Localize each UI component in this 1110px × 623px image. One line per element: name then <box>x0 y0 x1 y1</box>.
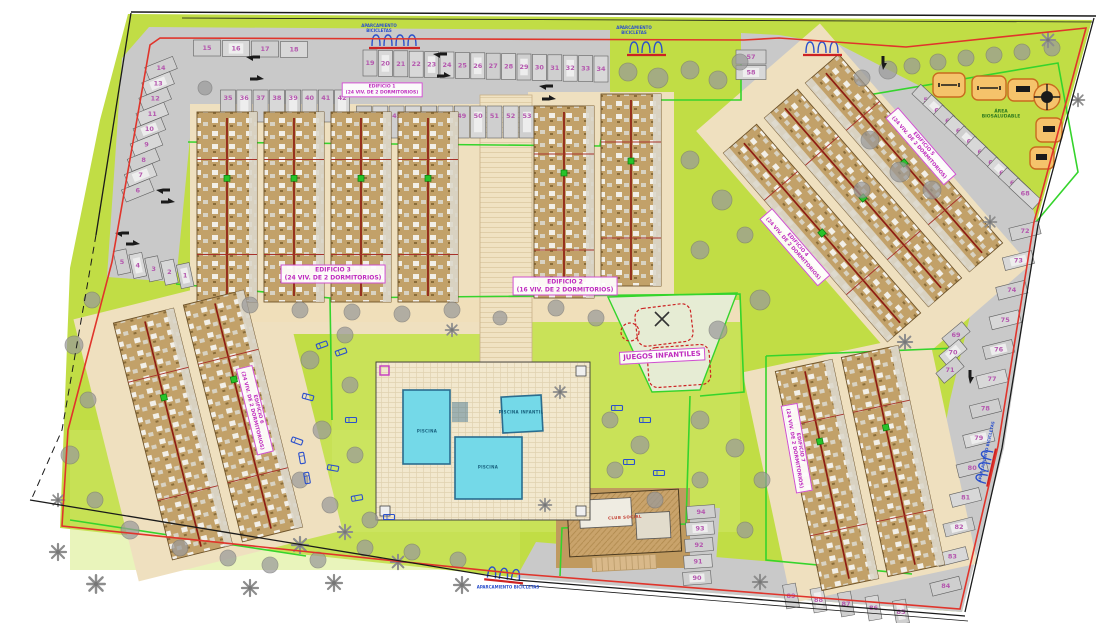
tree-icon <box>712 190 732 210</box>
palm-tree-icon <box>898 335 912 349</box>
parking-space-number: 90 <box>692 574 702 582</box>
parking-space-number: 7 <box>138 171 143 179</box>
tree-icon <box>890 162 910 182</box>
bike-parking-label: APARCAMIENTO BICICLETAS <box>361 24 397 34</box>
parking-space-number: 77 <box>987 375 996 383</box>
site-plan-drawing: 5432114131211109876151617181920212223242… <box>0 0 1110 623</box>
tree-icon <box>450 552 466 568</box>
tree-icon <box>681 151 699 169</box>
parking-space-number: 41 <box>321 94 331 102</box>
parking-space-number: 39 <box>289 94 299 102</box>
parking-space: 91 <box>684 554 713 569</box>
parking-space-number: 6 <box>136 186 141 194</box>
tree-icon <box>602 412 618 428</box>
parking-space-number: 22 <box>412 60 421 68</box>
parking-space-number: 2 <box>167 268 172 276</box>
parking-space-number: 52 <box>506 112 515 120</box>
tree-icon <box>87 492 103 508</box>
fitness-area-label: ÁREA BIOSALUDABLE <box>982 110 1021 121</box>
parking-space-number: 26 <box>473 62 483 70</box>
parking-space: 16 <box>223 41 250 57</box>
parking-space: 33 <box>579 56 593 82</box>
tree-icon <box>262 557 278 573</box>
tree-icon <box>310 552 326 568</box>
parking-space-number: 76 <box>994 345 1004 353</box>
parking-space-number: 38 <box>272 94 282 102</box>
tree-icon <box>301 351 319 369</box>
parking-space-number: 58 <box>746 69 756 77</box>
tree-icon <box>854 182 870 198</box>
elevator-core-icon <box>291 175 297 181</box>
parking-space: 17 <box>252 41 279 57</box>
parking-space-number: 12 <box>151 95 160 103</box>
tree-icon <box>607 462 623 478</box>
parking-space-number: 1 <box>183 272 188 280</box>
elevator-core-icon <box>160 394 167 401</box>
tree-icon <box>198 81 212 95</box>
apartment-building <box>534 106 594 298</box>
parking-space-number: 20 <box>381 59 391 67</box>
parking-space-number: 91 <box>693 558 703 566</box>
palm-tree-icon <box>242 580 258 596</box>
tree-icon <box>737 227 753 243</box>
parking-space-number: 11 <box>148 110 158 118</box>
parking-space: 30 <box>532 54 546 80</box>
parking-space-number: 27 <box>489 62 498 70</box>
building-name: EDIFICIO 1 <box>369 84 396 89</box>
parking-space-number: 29 <box>519 63 529 71</box>
parking-space: 32 <box>563 55 577 81</box>
parking-space: 20 <box>378 50 392 76</box>
fitness-label-line2: BIOSALUDABLE <box>982 115 1021 120</box>
building-label-edificio-1: EDIFICIO 1 (24 VIV. DE 2 DORMITORIOS) <box>342 82 423 97</box>
tree-icon <box>588 310 604 326</box>
parking-space: 28 <box>502 54 516 80</box>
parking-space-number: 93 <box>695 525 704 533</box>
parking-space-number: 32 <box>566 64 575 72</box>
tree-icon <box>548 300 564 316</box>
tree-icon <box>709 321 727 339</box>
parking-space-number: 82 <box>954 523 963 531</box>
pool-stairs <box>452 402 468 422</box>
tree-icon <box>754 472 770 488</box>
tree-icon <box>394 306 410 322</box>
building-label-edificio-3: EDIFICIO 3 (24 VIV. DE 2 DORMITORIOS) <box>281 265 386 284</box>
tree-icon <box>958 50 974 66</box>
parking-space-number: 13 <box>154 79 163 87</box>
tree-icon <box>854 70 870 86</box>
tree-icon <box>493 311 507 325</box>
parking-space-number: 37 <box>256 94 265 102</box>
parking-space-number: 80 <box>968 464 978 472</box>
apartment-building <box>398 112 458 302</box>
tree-icon <box>322 497 338 513</box>
palm-tree-icon <box>554 386 567 399</box>
tree-icon <box>61 446 79 464</box>
parking-space-number: 84 <box>941 582 951 590</box>
parking-space-number: 30 <box>535 63 545 71</box>
site-plan-canvas: 5432114131211109876151617181920212223242… <box>0 0 1110 623</box>
parking-space-number: 25 <box>458 61 468 69</box>
tree-icon <box>648 68 668 88</box>
parking-space-number: 69 <box>951 331 961 339</box>
parking-space-number: 16 <box>231 45 241 53</box>
club-pergola <box>592 554 657 571</box>
palm-tree-icon <box>753 575 767 589</box>
elevator-core-icon <box>561 170 567 176</box>
parking-space: 53 <box>520 106 535 138</box>
building-label-edificio-2: EDIFICIO 2 (16 VIV. DE 2 DORMITORIOS) <box>513 277 618 296</box>
tree-icon <box>65 336 83 354</box>
palm-tree-icon <box>539 499 552 512</box>
parking-space-number: 24 <box>442 61 452 69</box>
parking-space-number: 40 <box>305 94 315 102</box>
elevator-core-icon <box>224 175 230 181</box>
parking-space: 31 <box>548 55 562 81</box>
parking-space-number: 53 <box>522 112 531 120</box>
palm-tree-icon <box>454 577 470 593</box>
bike-parking-label: APARCAMIENTO BICICLETAS <box>616 26 652 36</box>
parking-space: 18 <box>281 42 308 58</box>
parking-space-number: 31 <box>550 64 560 72</box>
tree-icon <box>344 304 360 320</box>
bike-label-line2: BICICLETAS <box>616 31 652 36</box>
parking-space-number: 78 <box>981 405 991 413</box>
tree-icon <box>930 54 946 70</box>
tree-icon <box>619 63 637 81</box>
tree-icon <box>313 421 331 439</box>
parking-space-number: 36 <box>240 94 250 102</box>
building-name: EDIFICIO 3 <box>315 267 351 274</box>
tree-icon <box>709 71 727 89</box>
elevator-core-icon <box>425 175 431 181</box>
parking-space-number: 8 <box>141 156 146 164</box>
pool-main <box>403 390 450 464</box>
parking-space-number: 19 <box>365 59 375 67</box>
parking-space: 52 <box>503 106 518 138</box>
tree-icon <box>750 290 770 310</box>
parking-space-number: 74 <box>1007 286 1017 294</box>
parking-space-number: 10 <box>145 125 155 133</box>
tree-icon <box>342 377 358 393</box>
parking-space: 26 <box>471 53 485 79</box>
parking-space-number: 23 <box>427 61 436 69</box>
tree-icon <box>726 439 744 457</box>
building-units: (24 VIV. DE 2 DORMITORIOS) <box>346 90 419 96</box>
parking-space: 15 <box>194 40 221 56</box>
pool-area <box>376 362 590 520</box>
tree-icon <box>647 492 663 508</box>
club-label-text: CLUB SOCIAL <box>608 514 642 521</box>
pool-label-text: PISCINA INFANTIL <box>499 410 544 415</box>
palm-tree-icon <box>984 216 997 229</box>
parking-space: 92 <box>685 538 714 553</box>
parking-space-number: 34 <box>596 65 606 73</box>
tree-icon <box>337 327 353 343</box>
palm-tree-icon <box>446 324 459 337</box>
elevator-core-icon <box>230 376 237 383</box>
building-units: (24 VIV. DE 2 DORMITORIOS) <box>285 274 382 282</box>
tree-icon <box>362 512 378 528</box>
parking-space-number: 49 <box>457 112 467 120</box>
tree-icon <box>923 181 941 199</box>
building-units: (16 VIV. DE 2 DORMITORIOS) <box>517 286 614 294</box>
bike-label-line2: BICICLETAS <box>514 585 540 590</box>
pool-label-text: PISCINA <box>417 429 437 434</box>
tree-icon <box>172 540 188 556</box>
tree-icon <box>732 54 748 70</box>
pool-kids-label: PISCINA INFANTIL <box>499 411 544 416</box>
parking-space: 29 <box>517 54 531 80</box>
parking-space: 93 <box>686 521 715 536</box>
parking-space: 50 <box>471 106 486 138</box>
tree-icon <box>84 292 100 308</box>
tree-icon <box>121 521 139 539</box>
elevator-core-icon <box>816 438 823 445</box>
parking-space-number: 15 <box>202 44 212 52</box>
palm-tree-icon <box>326 575 342 591</box>
parking-space-number: 73 <box>1014 257 1023 265</box>
elevator-core-icon <box>628 158 634 164</box>
tree-icon <box>737 522 753 538</box>
parking-space-number: 3 <box>151 265 156 273</box>
elevator-core-icon <box>358 175 364 181</box>
elevator-core-icon <box>882 424 889 431</box>
parking-space: 19 <box>363 50 377 76</box>
palm-tree-icon <box>87 575 105 593</box>
tree-icon <box>444 302 460 318</box>
parking-space-number: 81 <box>961 493 971 501</box>
tree-icon <box>404 544 420 560</box>
playground-label-text: JUEGOS INFANTILES <box>623 350 701 362</box>
tree-icon <box>220 550 236 566</box>
parking-space-number: 75 <box>1001 316 1011 324</box>
parking-space-number: 28 <box>504 63 514 71</box>
tree-icon <box>861 131 879 149</box>
tree-icon <box>80 392 96 408</box>
parking-space-number: 33 <box>581 65 590 73</box>
tree-icon <box>691 241 709 259</box>
parking-space: 34 <box>594 56 608 82</box>
tree-icon <box>681 61 699 79</box>
parking-space-number: 92 <box>694 541 703 549</box>
parking-space-number: 71 <box>945 366 955 374</box>
parking-space-number: 85 <box>896 608 906 616</box>
parking-space: 21 <box>394 51 408 77</box>
pool-main-label: PISCINA <box>417 430 437 435</box>
tree-icon <box>292 472 308 488</box>
palm-tree-icon <box>50 544 66 560</box>
parking-space-number: 83 <box>948 553 957 561</box>
parking-space-number: 94 <box>696 508 706 516</box>
tree-icon <box>986 47 1002 63</box>
parking-space-number: 21 <box>396 60 406 68</box>
tree-icon <box>292 302 308 318</box>
parking-space-number: 72 <box>1020 227 1029 235</box>
tree-icon <box>631 436 649 454</box>
tree-icon <box>692 472 708 488</box>
bike-label-line2: BICICLETAS <box>361 29 397 34</box>
parking-space: 27 <box>486 53 500 79</box>
bike-label-line1: APARCAMIENTO <box>477 585 513 590</box>
pool-south-label: PISCINA <box>478 466 498 471</box>
parking-space-number: 50 <box>474 112 484 120</box>
parking-space: 22 <box>409 51 423 77</box>
tree-icon <box>347 447 363 463</box>
parking-space-number: 14 <box>156 64 166 72</box>
apartment-building <box>601 94 661 286</box>
parking-space-number: 18 <box>289 46 299 54</box>
parking-space: 25 <box>455 52 469 78</box>
parking-space: 51 <box>487 106 502 138</box>
parking-space-number: 68 <box>1021 190 1031 198</box>
building-name: EDIFICIO 2 <box>547 279 583 286</box>
parking-space-number: 5 <box>120 258 125 266</box>
tree-icon <box>904 58 920 74</box>
parking-space-number: 79 <box>974 434 984 442</box>
palm-tree-icon <box>1041 33 1055 47</box>
pool-label-text: PISCINA <box>478 465 498 470</box>
tree-icon <box>242 297 258 313</box>
bench-icon <box>1016 86 1030 92</box>
tree-icon <box>1014 44 1030 60</box>
parking-space-number: 4 <box>136 261 141 269</box>
apartment-building <box>197 112 257 302</box>
parking-space-number: 70 <box>948 349 958 357</box>
parking-space: 90 <box>683 571 712 586</box>
parking-space: 94 <box>687 505 716 520</box>
parking-space-number: 17 <box>260 45 269 53</box>
bike-parking-label: APARCAMIENTO BICICLETAS <box>477 586 540 591</box>
parking-space-number: 9 <box>144 141 149 149</box>
parking-space-number: 51 <box>490 112 500 120</box>
palm-tree-icon <box>338 525 352 539</box>
tree-icon <box>691 411 709 429</box>
parking-space-number: 35 <box>223 94 233 102</box>
